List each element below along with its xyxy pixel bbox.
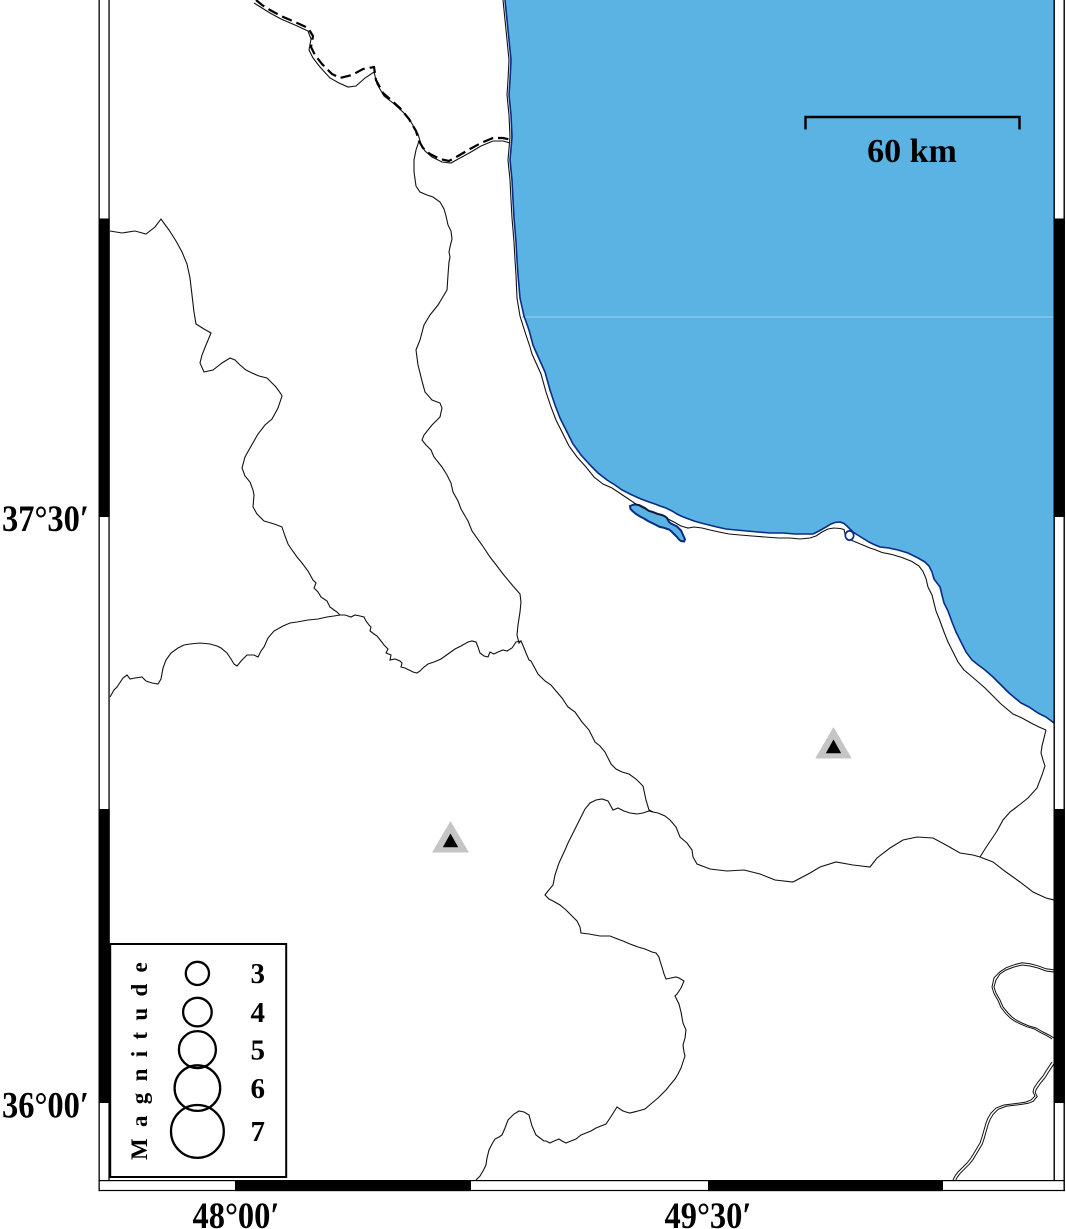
- svg-text:49°30′: 49°30′: [665, 1196, 752, 1229]
- svg-text:Magnitude: Magnitude: [127, 951, 152, 1160]
- svg-text:48°00′: 48°00′: [193, 1196, 280, 1229]
- svg-text:4: 4: [250, 997, 265, 1029]
- svg-text:3: 3: [250, 958, 265, 990]
- svg-text:36°00′: 36°00′: [2, 1086, 89, 1127]
- svg-text:6: 6: [250, 1073, 265, 1105]
- svg-text:7: 7: [250, 1116, 265, 1148]
- svg-text:5: 5: [250, 1035, 265, 1067]
- svg-text:60 km: 60 km: [867, 133, 957, 170]
- svg-text:37°30′: 37°30′: [2, 499, 89, 540]
